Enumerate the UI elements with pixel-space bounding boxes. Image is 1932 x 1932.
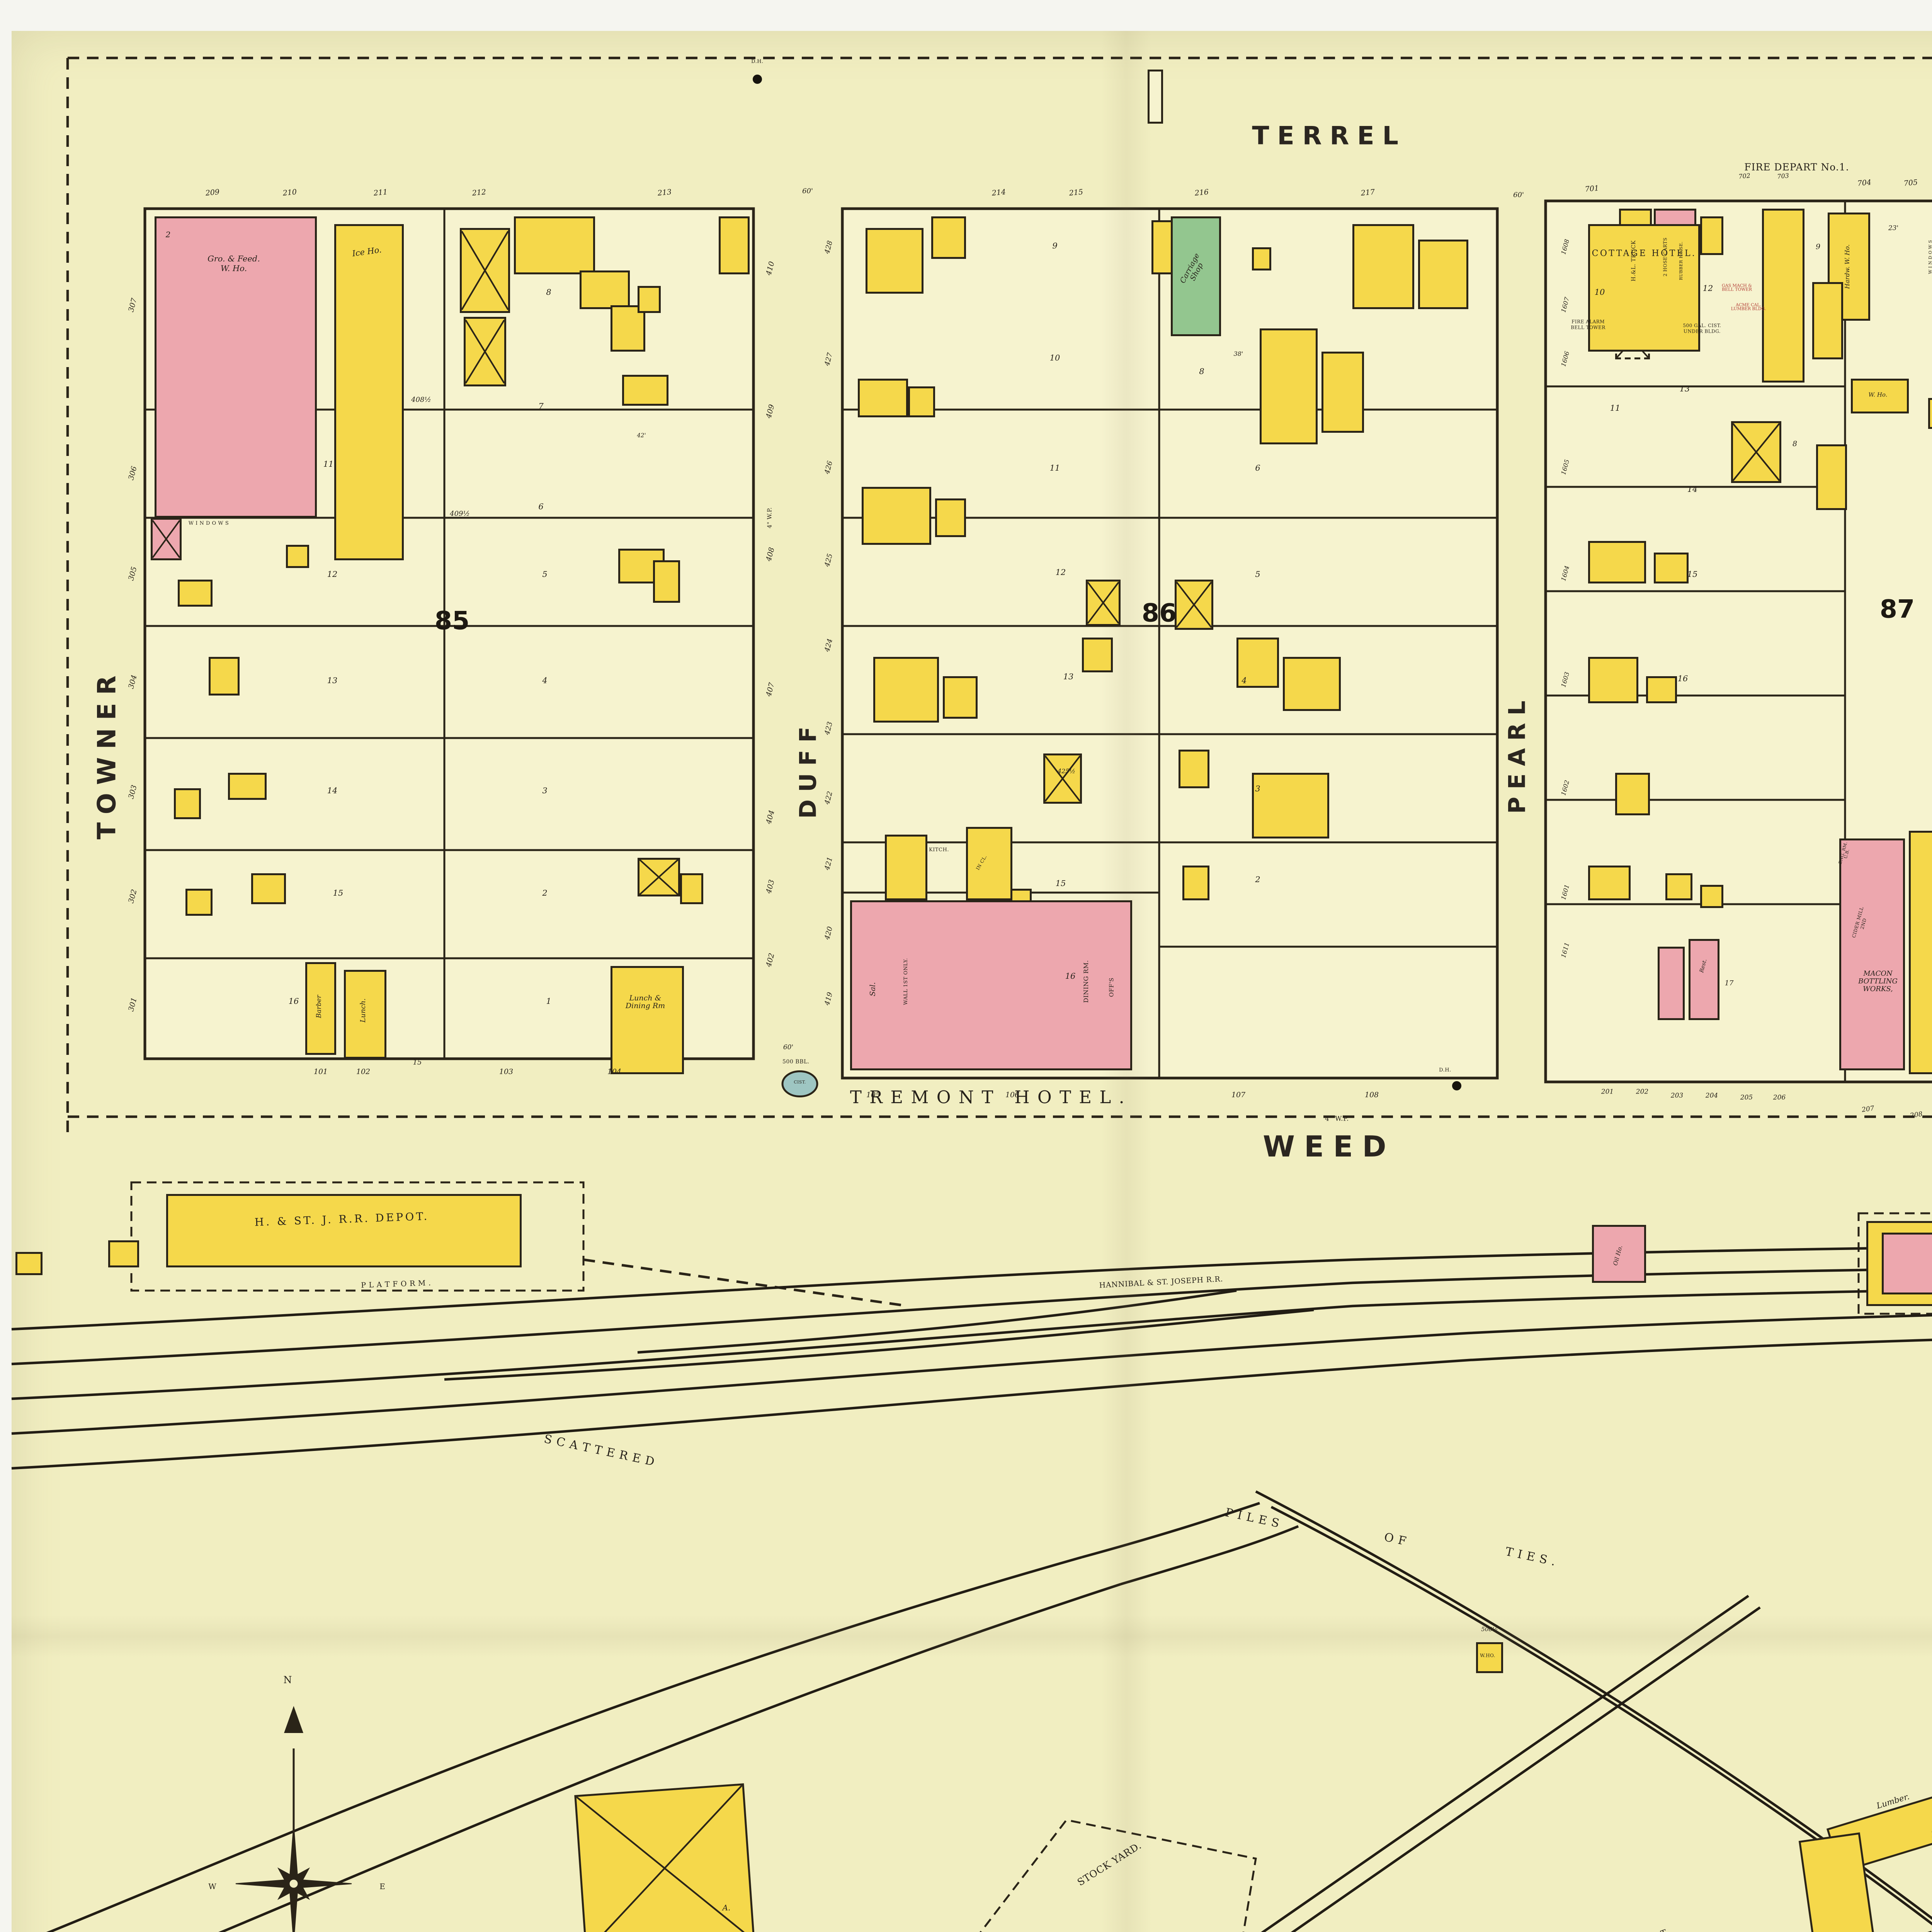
map-label: W I N D O W S bbox=[1930, 240, 1932, 274]
cross-brace-icon bbox=[153, 520, 180, 558]
building bbox=[1418, 240, 1468, 309]
map-number: 6 bbox=[1255, 465, 1260, 474]
map-number: 10 bbox=[1050, 355, 1060, 364]
building bbox=[1252, 773, 1329, 838]
building bbox=[719, 216, 750, 274]
map-number: 508½ bbox=[1481, 1628, 1498, 1634]
double-hydrant-dot bbox=[1452, 1081, 1461, 1090]
building bbox=[1352, 224, 1414, 309]
map-number: 107 bbox=[1231, 1091, 1245, 1099]
building bbox=[1588, 541, 1646, 583]
map-label: MACON BOTTLING WORKS, bbox=[1858, 970, 1898, 993]
map-number: 15 bbox=[333, 890, 344, 899]
map-number: 217 bbox=[1361, 189, 1375, 198]
building bbox=[1588, 657, 1638, 703]
building bbox=[943, 676, 978, 719]
map-number: 702 bbox=[1738, 174, 1751, 182]
map-number: 2 bbox=[542, 890, 547, 899]
map-label: WALL 1ST ONLY. bbox=[905, 958, 911, 1005]
map-label: D.H. bbox=[1439, 1070, 1451, 1075]
building bbox=[680, 873, 703, 904]
map-number: 3 bbox=[1255, 786, 1260, 795]
map-number: 101 bbox=[314, 1068, 328, 1076]
building bbox=[1646, 676, 1677, 703]
building bbox=[1321, 352, 1364, 433]
building bbox=[1179, 750, 1209, 788]
map-number: 209 bbox=[205, 189, 220, 198]
map-number: 60' bbox=[802, 187, 813, 195]
map-label: Sal. bbox=[869, 982, 877, 996]
map-number: 14 bbox=[1687, 486, 1698, 495]
building bbox=[286, 545, 309, 568]
building bbox=[1252, 247, 1271, 270]
building bbox=[931, 216, 966, 259]
map-number: 203 bbox=[1671, 1094, 1683, 1101]
map-label: Lunch. bbox=[359, 998, 367, 1023]
map-label: GAS MACH & BELL TOWER bbox=[1722, 285, 1752, 295]
building bbox=[166, 1194, 522, 1267]
map-label: DINING RM. bbox=[1084, 960, 1091, 1003]
map-number: 5 bbox=[542, 571, 547, 580]
map-number: 214 bbox=[992, 189, 1006, 198]
building bbox=[935, 498, 966, 537]
map-number: 701 bbox=[1585, 185, 1599, 194]
map-number: 7 bbox=[538, 403, 543, 412]
map-number: 409½ bbox=[450, 510, 470, 518]
map-number: 216 bbox=[1194, 189, 1209, 198]
building bbox=[885, 835, 927, 900]
map-number: 105 bbox=[866, 1091, 880, 1099]
map-number: 104 bbox=[607, 1068, 621, 1076]
building bbox=[1654, 553, 1689, 583]
map-number: 213 bbox=[657, 189, 672, 198]
street-label: TOWNER bbox=[96, 668, 124, 840]
map-label: Lunch & Dining Rm bbox=[626, 995, 665, 1011]
map-number: 211 bbox=[373, 189, 388, 198]
map-label: RUBBER HO SE. bbox=[1680, 241, 1685, 280]
map-number: 215 bbox=[1069, 189, 1083, 198]
building bbox=[1148, 70, 1163, 124]
sanborn-map-sheet: Nov.1895 MACON MO. 6 2 5 Scale of Feet. … bbox=[0, 0, 1932, 1932]
map-number: 4 bbox=[542, 677, 547, 687]
map-number: 11 bbox=[323, 461, 334, 470]
map-number: 12 bbox=[327, 571, 338, 580]
map-number: 17 bbox=[1725, 980, 1734, 987]
cross-brace-icon bbox=[466, 319, 504, 384]
street-label: WEED bbox=[1263, 1131, 1396, 1164]
cross-brace-icon bbox=[1045, 755, 1080, 802]
map-label: 4" W.P. bbox=[768, 507, 774, 529]
building bbox=[1882, 1233, 1932, 1294]
compass-hub bbox=[289, 1879, 299, 1889]
map-number: 14 bbox=[327, 787, 338, 797]
map-number: 13 bbox=[1680, 386, 1690, 395]
railroad-track bbox=[1121, 1526, 1298, 1584]
railroad-track bbox=[12, 1283, 1932, 1399]
map-label: 2 HOSE CARTS bbox=[1665, 238, 1670, 277]
building bbox=[966, 827, 1012, 900]
compass-fleur bbox=[284, 1706, 303, 1733]
building bbox=[1588, 866, 1631, 900]
map-number: 16 bbox=[289, 998, 299, 1007]
railroad-track bbox=[12, 1557, 1082, 1932]
map-label: E bbox=[379, 1883, 385, 1892]
building bbox=[1700, 885, 1723, 908]
map-number: 202 bbox=[1636, 1090, 1648, 1097]
map-number: 212 bbox=[472, 189, 486, 198]
building bbox=[638, 858, 680, 896]
map-label: Barber bbox=[317, 995, 324, 1018]
map-number: 2 bbox=[166, 231, 171, 240]
map-number: 10 bbox=[1595, 289, 1605, 298]
map-number: 4 bbox=[1242, 677, 1247, 687]
map-number: 12 bbox=[1056, 569, 1066, 578]
map-number: 38' bbox=[1234, 352, 1243, 359]
building bbox=[1839, 838, 1905, 1070]
map-number: 408½ bbox=[411, 396, 431, 404]
map-label: OFF'S bbox=[1110, 978, 1116, 997]
building bbox=[1700, 216, 1723, 255]
map-label: A. bbox=[723, 1905, 731, 1913]
map-label: 500 GAL. CIST. UNDER BLDG. bbox=[1683, 325, 1721, 336]
map-label: Hardw. W. Ho. bbox=[1845, 244, 1852, 289]
map-number: 23' bbox=[1888, 226, 1898, 233]
building bbox=[1928, 398, 1932, 429]
map-number: 15 bbox=[1687, 571, 1698, 580]
stock-yard-outline bbox=[966, 1820, 1256, 1932]
map-number: 704 bbox=[1857, 179, 1872, 188]
building bbox=[873, 657, 939, 723]
railroad-track bbox=[444, 1310, 1314, 1379]
map-label: FIRE ALARM BELL TOWER bbox=[1571, 321, 1605, 332]
map-number: 206 bbox=[1773, 1095, 1786, 1103]
building bbox=[653, 560, 680, 603]
building bbox=[108, 1240, 139, 1267]
map-label: W. Ho. bbox=[1869, 393, 1888, 400]
map-number: 201 bbox=[1601, 1090, 1614, 1097]
building bbox=[1086, 580, 1121, 626]
map-label: 4" W.P. bbox=[1325, 1117, 1349, 1124]
building bbox=[514, 216, 595, 274]
street-label: PEARL bbox=[1505, 693, 1531, 814]
map-number: 108 bbox=[1365, 1091, 1379, 1099]
map-number: 11 bbox=[1610, 405, 1621, 414]
map-label: FIRE DEPART No.1. bbox=[1744, 165, 1849, 175]
building bbox=[862, 487, 931, 545]
building bbox=[460, 228, 510, 313]
building bbox=[1812, 282, 1843, 359]
map-number: 42' bbox=[637, 434, 646, 440]
map-number: 2 bbox=[1255, 876, 1260, 886]
map-label: TREMONT HOTEL. bbox=[850, 1090, 1132, 1109]
map-number: 13 bbox=[327, 677, 338, 687]
building bbox=[1762, 209, 1804, 383]
map-number: 13 bbox=[1063, 673, 1074, 683]
map-number: 204 bbox=[1706, 1094, 1718, 1101]
street-label: DUFF bbox=[796, 719, 822, 818]
map-number: 8 bbox=[546, 289, 551, 298]
map-number: 425½ bbox=[1058, 769, 1075, 776]
map-number: 705 bbox=[1903, 179, 1918, 188]
map-number: 9 bbox=[1052, 243, 1057, 252]
map-number: 106 bbox=[1005, 1091, 1019, 1099]
map-number: 103 bbox=[499, 1068, 513, 1076]
cross-brace-icon bbox=[1733, 423, 1779, 481]
building bbox=[1260, 328, 1318, 444]
map-number: 8 bbox=[1793, 440, 1797, 448]
map-label: Gro. & Feed. W. Ho. bbox=[207, 255, 260, 274]
map-number: 9 bbox=[1816, 243, 1820, 251]
building bbox=[185, 889, 213, 916]
building bbox=[174, 788, 201, 819]
building bbox=[228, 773, 267, 800]
cross-brace-icon bbox=[639, 860, 678, 895]
building bbox=[1731, 421, 1781, 483]
street-label: TERREL bbox=[1252, 125, 1406, 153]
building bbox=[866, 228, 923, 294]
building bbox=[1182, 866, 1209, 900]
building bbox=[1615, 773, 1650, 815]
building bbox=[580, 270, 630, 309]
map-number: 60' bbox=[1513, 191, 1524, 199]
building bbox=[251, 873, 286, 904]
map-label: W I N D O W S bbox=[189, 523, 229, 528]
map-label: H.&L. TRUCK bbox=[1631, 240, 1638, 281]
building bbox=[1909, 831, 1932, 1074]
building bbox=[151, 518, 182, 560]
map-number: 11 bbox=[1050, 465, 1060, 474]
building bbox=[622, 375, 668, 406]
double-hydrant-dot bbox=[753, 75, 762, 84]
map-label: W bbox=[208, 1883, 216, 1892]
building bbox=[638, 286, 661, 313]
building bbox=[1689, 939, 1719, 1020]
cross-brace-icon bbox=[1177, 582, 1211, 628]
map-label: CIST. bbox=[794, 1082, 806, 1086]
map-label: ACME CAL. LUMBER BLDG. bbox=[1731, 304, 1766, 314]
map-label: KITCH. bbox=[929, 849, 949, 855]
block-number: 87 bbox=[1880, 599, 1915, 627]
block-number: 85 bbox=[435, 610, 469, 638]
map-number: 8 bbox=[1199, 368, 1204, 378]
building bbox=[15, 1252, 43, 1275]
building bbox=[1658, 947, 1685, 1020]
building bbox=[1082, 638, 1113, 672]
map-number: 102 bbox=[356, 1068, 370, 1076]
building bbox=[464, 317, 506, 386]
map-number: 15 bbox=[1056, 880, 1066, 889]
cross-brace-icon bbox=[462, 230, 508, 311]
building bbox=[1283, 657, 1341, 711]
map-number: 3 bbox=[542, 787, 547, 797]
map-number: 210 bbox=[282, 189, 297, 198]
building bbox=[1816, 444, 1847, 510]
building bbox=[1175, 580, 1213, 630]
map-label: W.HO. bbox=[1480, 1655, 1495, 1660]
building bbox=[1665, 873, 1692, 900]
building bbox=[611, 966, 684, 1074]
block-number: 86 bbox=[1142, 602, 1177, 631]
map-number: 6 bbox=[538, 503, 543, 513]
map-number: 1 bbox=[546, 998, 551, 1007]
map-number: 16 bbox=[1678, 675, 1688, 685]
building bbox=[209, 657, 240, 696]
building bbox=[1043, 753, 1082, 804]
building bbox=[908, 386, 935, 417]
map-number: 703 bbox=[1777, 174, 1789, 182]
map-number: 5 bbox=[1255, 571, 1260, 580]
map-label: D.H. bbox=[751, 61, 764, 66]
map-number: 60' bbox=[783, 1045, 793, 1053]
railroad-track bbox=[12, 1329, 1932, 1468]
map-label: 500 BBL. bbox=[782, 1060, 810, 1066]
map-number: 205 bbox=[1740, 1095, 1753, 1103]
map-number: 12 bbox=[1703, 285, 1713, 294]
map-label: N bbox=[284, 1677, 293, 1688]
map-number: 15 bbox=[413, 1059, 422, 1066]
building bbox=[178, 580, 213, 607]
building bbox=[334, 224, 404, 560]
cross-brace-icon bbox=[1088, 582, 1119, 624]
building bbox=[858, 379, 908, 417]
map-number: 16 bbox=[1065, 973, 1076, 982]
